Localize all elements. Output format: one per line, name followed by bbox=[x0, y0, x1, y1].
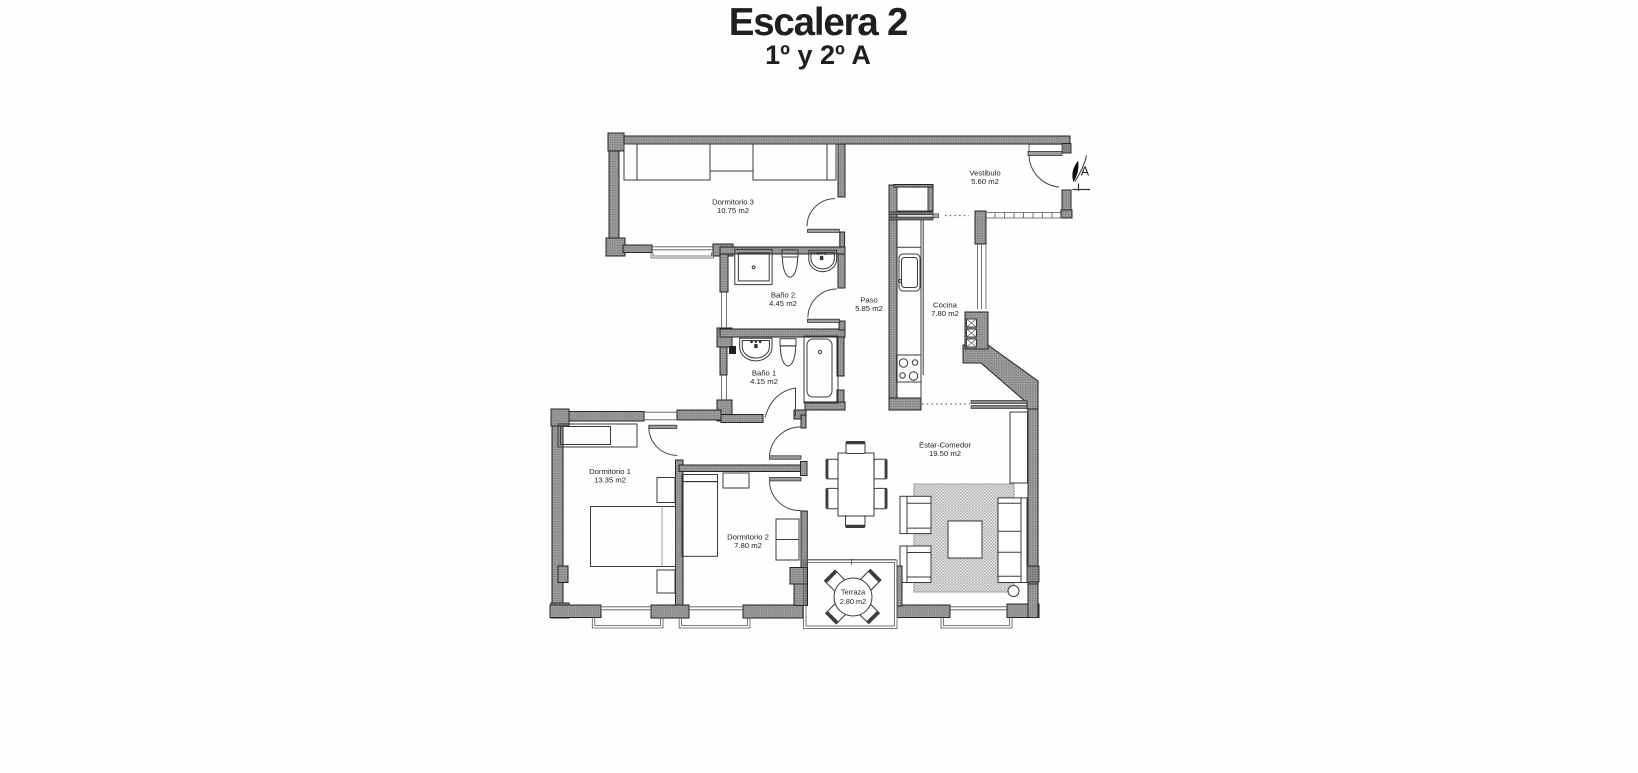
svg-text:Baño 1: Baño 1 bbox=[752, 369, 776, 378]
svg-text:4.15 m2: 4.15 m2 bbox=[750, 377, 778, 386]
svg-text:Paso: Paso bbox=[860, 296, 878, 305]
svg-text:Estar-Comedor: Estar-Comedor bbox=[919, 441, 972, 450]
svg-text:7.80 m2: 7.80 m2 bbox=[734, 541, 762, 550]
svg-text:Cocina: Cocina bbox=[933, 301, 958, 310]
svg-text:7.80 m2: 7.80 m2 bbox=[931, 309, 959, 318]
svg-text:Dormitorio 2: Dormitorio 2 bbox=[727, 533, 769, 542]
svg-text:Baño 2: Baño 2 bbox=[771, 291, 795, 300]
svg-text:5.85 m2: 5.85 m2 bbox=[855, 304, 883, 313]
svg-text:2.80 m2: 2.80 m2 bbox=[840, 597, 866, 606]
svg-text:Dormitorio 1: Dormitorio 1 bbox=[589, 467, 631, 476]
svg-text:4.45 m2: 4.45 m2 bbox=[769, 299, 797, 308]
svg-text:Vestibulo: Vestibulo bbox=[969, 168, 1000, 177]
svg-text:Dormitorio 3: Dormitorio 3 bbox=[712, 198, 754, 207]
svg-text:5.60 m2: 5.60 m2 bbox=[971, 177, 999, 186]
svg-text:10.75 m2: 10.75 m2 bbox=[717, 206, 749, 215]
svg-text:1º y 2º A: 1º y 2º A bbox=[765, 40, 871, 70]
svg-text:Escalera 2: Escalera 2 bbox=[729, 1, 908, 44]
svg-text:Terraza: Terraza bbox=[841, 588, 866, 597]
svg-text:A: A bbox=[1081, 165, 1090, 179]
svg-text:19.50 m2: 19.50 m2 bbox=[929, 449, 961, 458]
svg-text:13.35 m2: 13.35 m2 bbox=[594, 476, 626, 485]
